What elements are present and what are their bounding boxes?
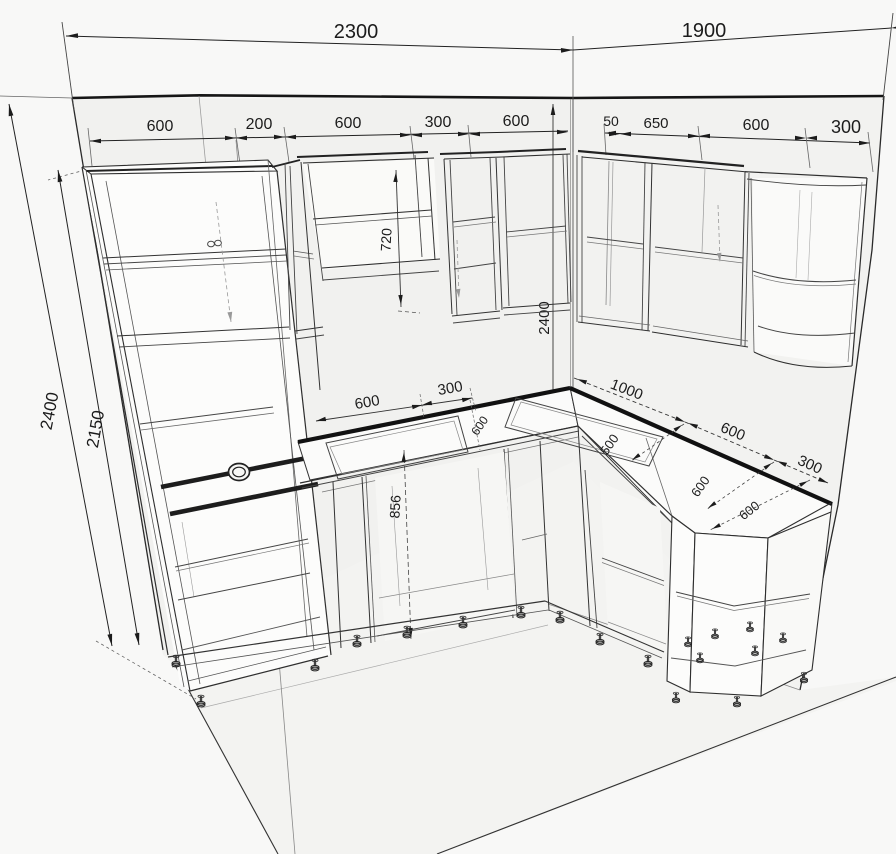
svg-text:300: 300 <box>831 117 861 137</box>
svg-text:600: 600 <box>147 118 174 135</box>
svg-text:50: 50 <box>603 113 619 129</box>
svg-text:2400: 2400 <box>536 301 553 334</box>
svg-text:650: 650 <box>643 115 668 132</box>
svg-text:1900: 1900 <box>682 20 727 42</box>
svg-text:600: 600 <box>743 117 770 134</box>
svg-text:600: 600 <box>335 115 362 132</box>
svg-text:856: 856 <box>386 494 403 518</box>
svg-text:300: 300 <box>425 114 452 131</box>
svg-text:600: 600 <box>503 113 530 130</box>
svg-text:200: 200 <box>246 116 273 133</box>
svg-text:2300: 2300 <box>334 21 379 43</box>
svg-text:720: 720 <box>377 227 394 251</box>
